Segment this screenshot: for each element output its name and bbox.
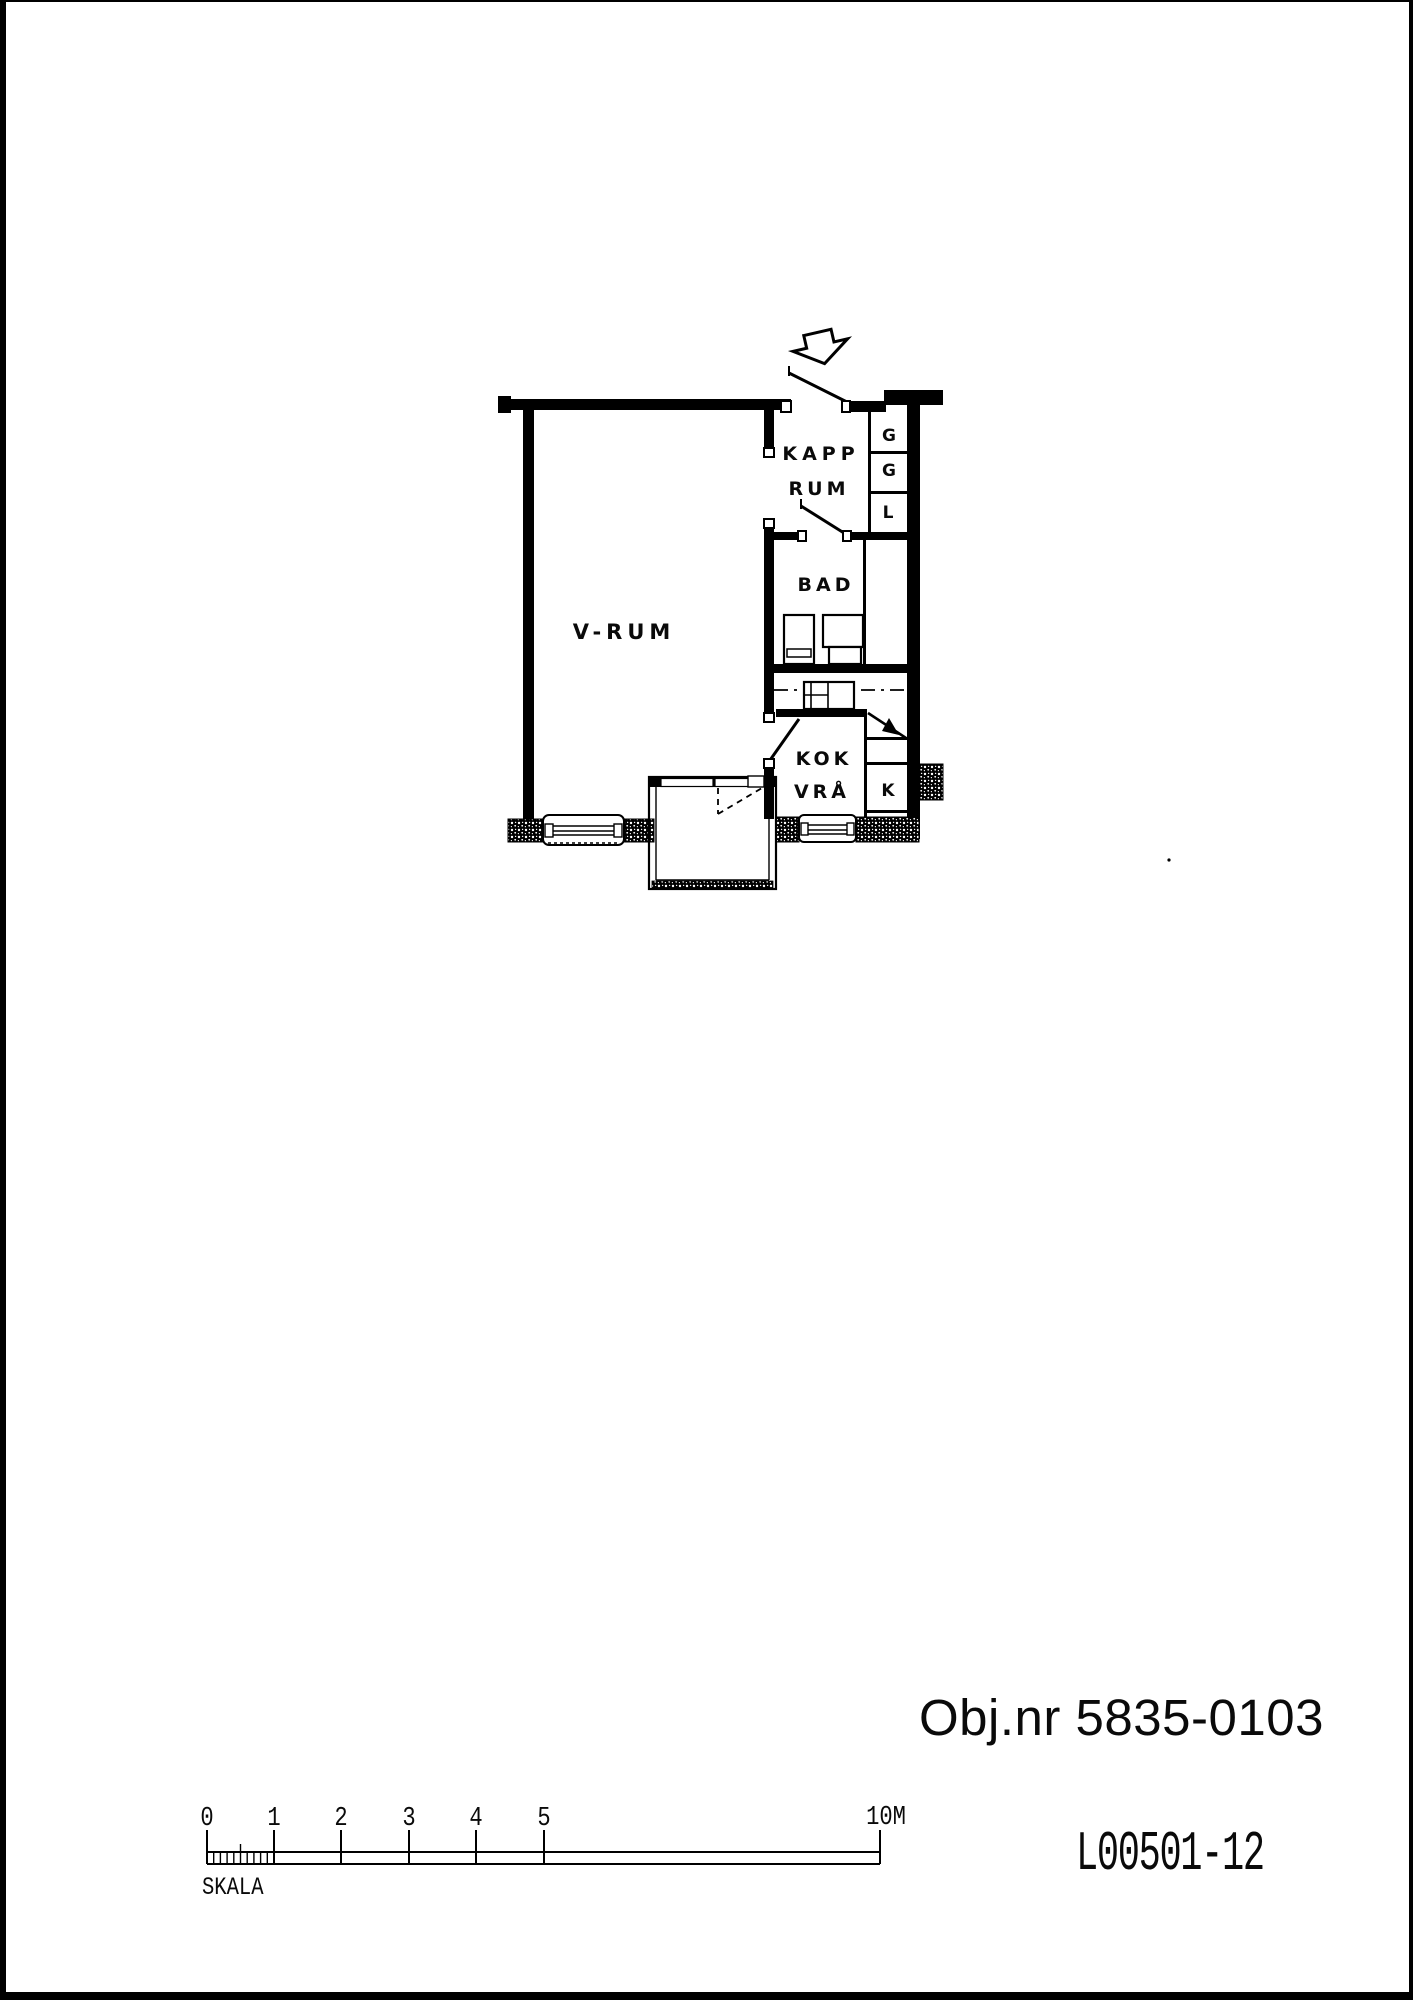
bathroom-door-leaf: [801, 506, 844, 533]
floor-plan-sheet: V-RUM KAPP RUM BAD KOK VRÅ G G L K Obj.n…: [0, 0, 1413, 2000]
closet-label-g-upper: G: [882, 426, 896, 446]
entrance-arrow-icon: [790, 326, 852, 370]
closet-hatch-arrow: [868, 713, 906, 738]
scale-title: SKALA: [202, 1873, 264, 1902]
entry-door-leaf: [789, 373, 847, 402]
balcony-door-swing: [718, 788, 762, 814]
scale-end-label: 10M: [866, 1803, 906, 1833]
drawing-number-text: L00501-12: [1076, 1822, 1264, 1886]
scale-tick-0: 0: [200, 1804, 213, 1834]
scale-tick-4: 4: [469, 1804, 482, 1834]
room-label-cloakroom-line1: KAPP: [782, 443, 859, 465]
room-label-kitchenette-line2: VRÅ: [794, 781, 850, 803]
room-label-cloakroom-line2: RUM: [789, 478, 850, 500]
scan-speck: [1167, 858, 1170, 861]
closet-label-g-lower: G: [882, 461, 896, 481]
scale-tick-3: 3: [402, 1804, 415, 1834]
closet-label-l: L: [883, 503, 894, 523]
room-label-living-room: V-RUM: [573, 620, 676, 644]
window-living-room: [543, 815, 624, 845]
scale-tick-2: 2: [334, 1804, 347, 1834]
scale-bar: [207, 1830, 880, 1864]
closet-label-k: K: [881, 781, 894, 801]
balcony: [649, 777, 776, 889]
walls: [498, 390, 943, 840]
kitchen-sink-unit: [804, 682, 854, 709]
room-label-bathroom: BAD: [798, 574, 855, 596]
scale-tick-1: 1: [267, 1804, 280, 1834]
window-kitchenette: [799, 815, 856, 842]
object-number-text: Obj.nr 5835-0103: [919, 1688, 1324, 1747]
bathroom-fixtures: [784, 615, 863, 664]
kitchenette-door-leaf: [768, 719, 799, 763]
room-label-kitchenette-line1: KOK: [796, 748, 853, 770]
scale-tick-5: 5: [537, 1804, 550, 1834]
